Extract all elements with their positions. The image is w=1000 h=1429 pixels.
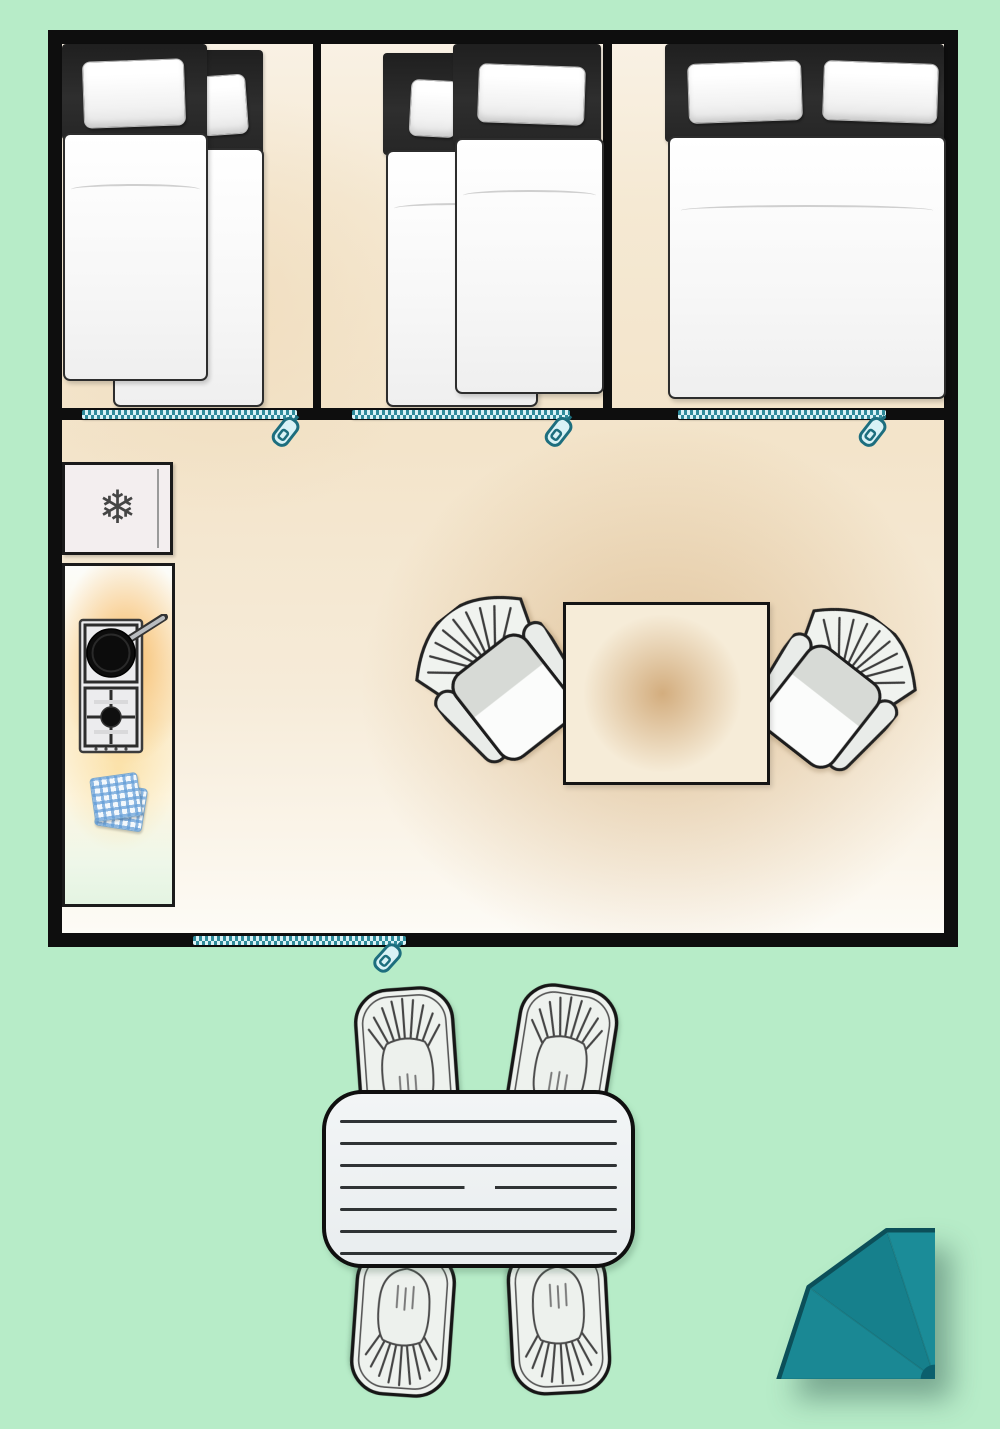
bed-pillow [409, 79, 459, 138]
zipper-door-entrance [193, 936, 406, 945]
campsite-floor-plan: ❄ [0, 0, 1000, 1429]
table-slat-line [340, 1230, 617, 1233]
interior-wall-bedroom2-3 [603, 44, 612, 420]
table-slat-line [340, 1142, 617, 1145]
zipper-door-bedroom-2 [352, 410, 570, 419]
bed-duvet [455, 138, 604, 394]
bed-pillow [687, 60, 803, 124]
zipper-door-bedroom-1 [82, 410, 297, 419]
dish-towel [89, 772, 143, 822]
duvet-fold-line [463, 190, 596, 201]
bed-duvet [63, 133, 208, 381]
bed-pillow [82, 58, 186, 129]
table-slat-line [340, 1252, 617, 1255]
zipper-door-bedroom-3 [678, 410, 886, 419]
bedroom1-bed-single-front [62, 44, 207, 377]
table-slat-line [340, 1164, 617, 1167]
bed-pillow [477, 63, 586, 126]
tent-structure: ❄ [48, 30, 958, 947]
duvet-fold-line [681, 205, 933, 216]
table-slat-line-split [340, 1186, 617, 1189]
table-slat-line [340, 1208, 617, 1211]
parasol [601, 1045, 935, 1379]
table-slat-line [340, 1120, 617, 1123]
bed-pillow [822, 60, 939, 124]
fridge: ❄ [62, 462, 173, 555]
picnic-table [322, 1090, 635, 1268]
bedroom3-bed-double [665, 44, 944, 395]
bed-duvet [668, 136, 946, 399]
stove-icon [76, 614, 176, 758]
dining-table [563, 602, 770, 785]
bedroom2-bed-single-front [453, 44, 601, 390]
snowflake-icon: ❄ [65, 484, 170, 530]
interior-wall-bedroom1-2 [313, 44, 321, 420]
duvet-fold-line [71, 184, 201, 195]
